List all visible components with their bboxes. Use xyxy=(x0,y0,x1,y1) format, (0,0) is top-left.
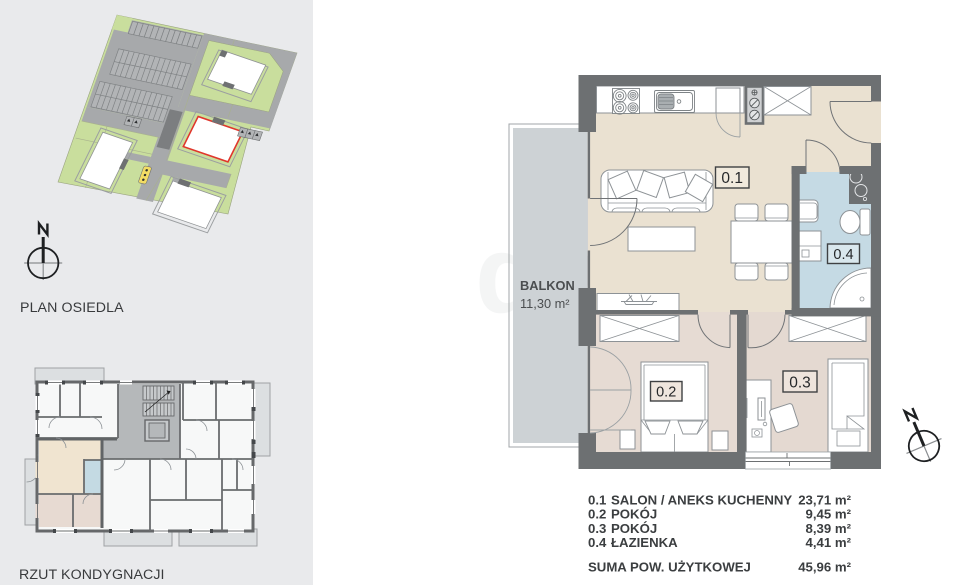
svg-text:8,39 m²: 8,39 m² xyxy=(806,521,852,536)
svg-text:11,30 m²: 11,30 m² xyxy=(520,296,570,311)
svg-text:0.2: 0.2 xyxy=(588,507,606,522)
svg-text:0.2: 0.2 xyxy=(656,385,676,401)
svg-text:POKÓJ: POKÓJ xyxy=(611,507,657,522)
svg-text:0.3: 0.3 xyxy=(588,521,606,536)
svg-text:0.3: 0.3 xyxy=(789,375,811,392)
svg-text:23,71 m²: 23,71 m² xyxy=(798,493,851,508)
svg-text:9,45 m²: 9,45 m² xyxy=(806,507,852,522)
svg-text:0.4: 0.4 xyxy=(833,247,853,263)
svg-text:0.1: 0.1 xyxy=(588,493,606,508)
svg-text:BALKON: BALKON xyxy=(520,278,575,293)
svg-text:0.1: 0.1 xyxy=(721,170,743,187)
svg-text:4,41 m²: 4,41 m² xyxy=(806,535,852,550)
svg-text:45,96 m²: 45,96 m² xyxy=(798,560,851,575)
svg-text:RZUT KONDYGNACJI: RZUT KONDYGNACJI xyxy=(19,567,165,583)
svg-text:SALON / ANEKS KUCHENNY: SALON / ANEKS KUCHENNY xyxy=(611,493,792,508)
svg-text:ŁAZIENKA: ŁAZIENKA xyxy=(611,535,678,550)
svg-text:SUMA POW. UŻYTKOWEJ: SUMA POW. UŻYTKOWEJ xyxy=(588,560,751,575)
svg-text:PLAN OSIEDLA: PLAN OSIEDLA xyxy=(20,300,124,316)
svg-text:0.4: 0.4 xyxy=(588,535,607,550)
svg-text:POKÓJ: POKÓJ xyxy=(611,521,657,536)
